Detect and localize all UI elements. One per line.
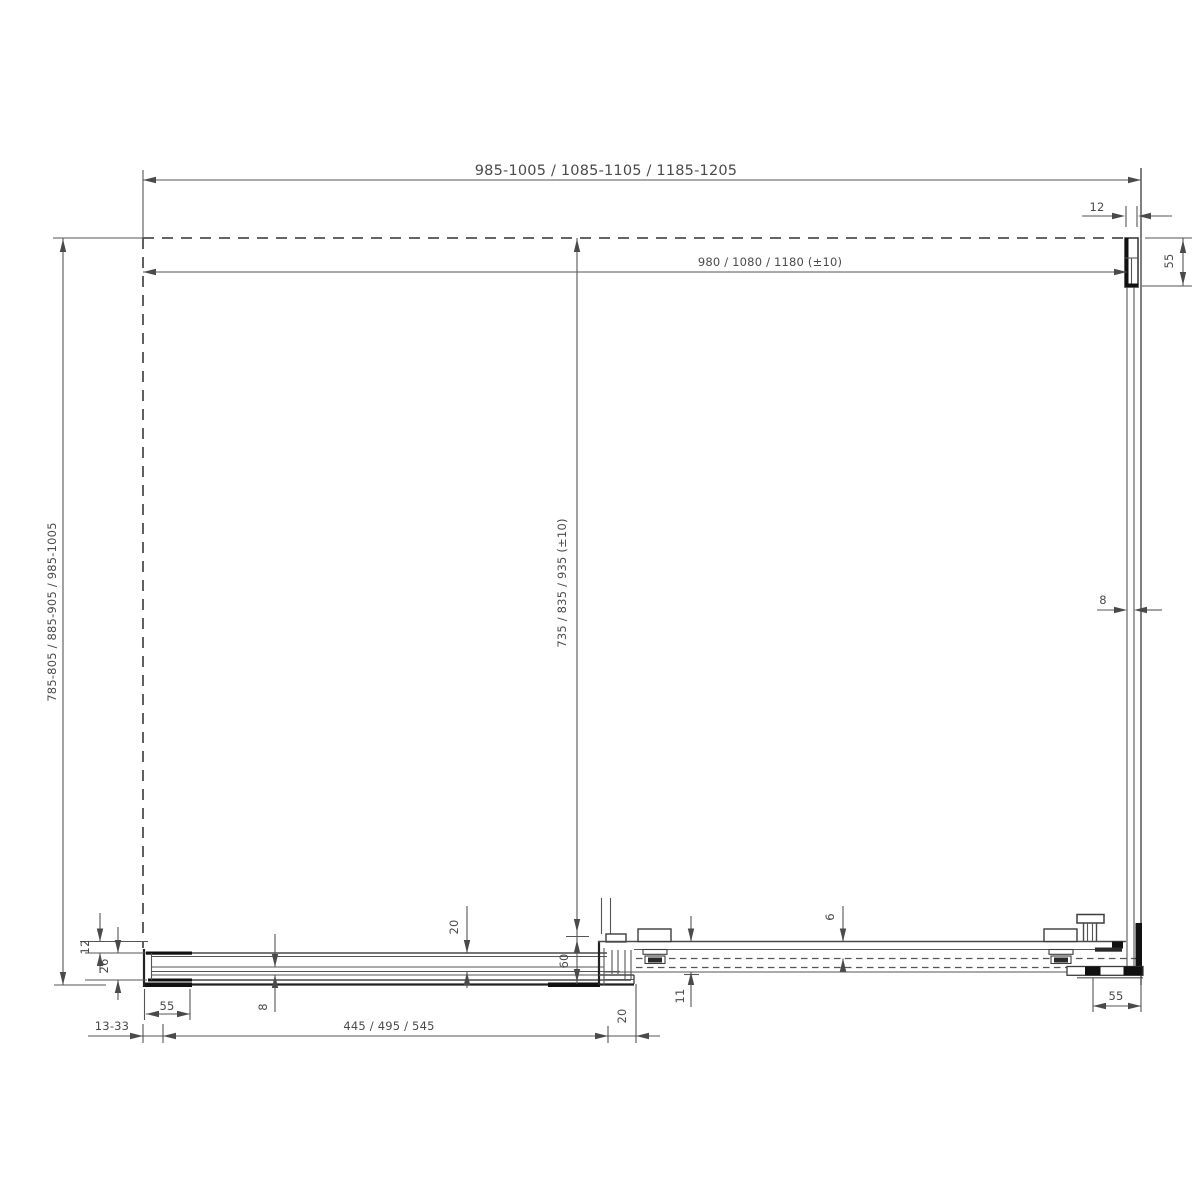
dim-top-profile-width-label: 12 (1089, 200, 1104, 214)
dim-depth-glass-label: 735 / 835 / 935 (±10) (555, 518, 569, 647)
technical-drawing: 985-1005 / 1085-1105 / 1185-1205 980 / 1… (0, 0, 1200, 1200)
dim-rail-bottom-label: 11 (673, 988, 687, 1003)
dim-rail-height-label: 60 (557, 953, 571, 968)
dim-wall-adjustment-label: 13-33 (95, 1019, 129, 1033)
dim-top-bracket-height: 55 (1142, 238, 1192, 286)
dim-left-profile-height-label: 26 (97, 958, 111, 973)
dim-width-overall-label: 985-1005 / 1085-1105 / 1185-1205 (475, 163, 738, 179)
dim-rail-top-gap-label: 6 (823, 913, 837, 921)
dim-door-overlap-label: 20 (615, 1008, 629, 1023)
dim-profile-depth: 20 (447, 906, 470, 988)
dim-corner-bracket-width-label: 55 (1108, 989, 1123, 1003)
dim-depth-overall-label: 785-805 / 885-905 / 985-1005 (45, 522, 59, 701)
dim-depth-glass: 735 / 835 / 935 (±10) (555, 238, 589, 984)
dim-left-profile-height: 26 (85, 927, 147, 1000)
dim-width-overall: 985-1005 / 1085-1105 / 1185-1205 (143, 163, 1141, 183)
dim-depth-overall: 785-805 / 885-905 / 985-1005 (45, 238, 106, 985)
dim-width-glass: 980 / 1080 / 1180 (±10) (143, 255, 1127, 275)
corner-bracket (1067, 923, 1143, 978)
dim-top-profile-width: 12 (1082, 200, 1172, 227)
roller-left (638, 929, 671, 964)
dim-corner-bracket-width: 55 (1093, 977, 1141, 1012)
dim-rail-top-gap: 6 (823, 906, 846, 972)
dim-profile-depth-label: 20 (447, 919, 461, 934)
dim-right-glass-thickness: 8 (1097, 593, 1162, 613)
dim-rail-bottom: 11 (673, 916, 699, 1007)
dim-bottom-glass-thickness: 8 (256, 934, 278, 1012)
door-stopper (1077, 915, 1104, 942)
plan-outline (53, 168, 1192, 985)
wall-profile-top-right (1125, 238, 1138, 287)
dim-left-offset-label: 12 (78, 939, 92, 954)
dim-bottom-glass-thickness-label: 8 (256, 1003, 270, 1011)
dim-top-bracket-height-label: 55 (1162, 253, 1176, 268)
dim-left-bracket-width: 55 (145, 989, 191, 1020)
dim-right-glass-thickness-label: 8 (1099, 593, 1107, 607)
dim-left-offset: 12 (78, 913, 148, 973)
dim-width-glass-label: 980 / 1080 / 1180 (±10) (698, 255, 842, 269)
dim-left-bracket-width-label: 55 (159, 999, 174, 1013)
dim-fixed-part-width-label: 445 / 495 / 545 (343, 1019, 434, 1033)
drawing-canvas: 985-1005 / 1085-1105 / 1185-1205 980 / 1… (0, 0, 1200, 1200)
